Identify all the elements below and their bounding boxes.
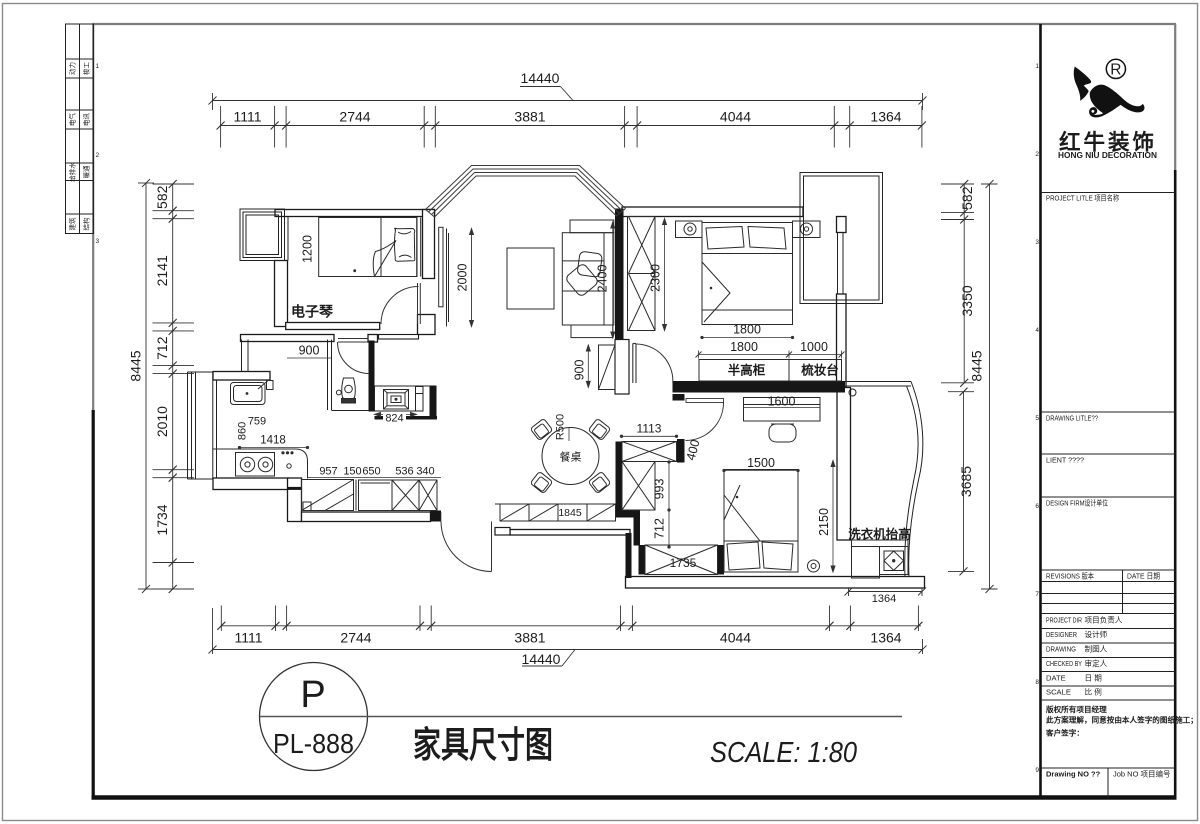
svg-text:R500: R500 (555, 414, 567, 440)
svg-text:1113: 1113 (637, 422, 662, 436)
svg-text:900: 900 (573, 360, 587, 381)
svg-text:993: 993 (653, 479, 667, 500)
svg-text:电讯: 电讯 (82, 113, 91, 127)
svg-text:客户签字：: 客户签字： (1046, 728, 1084, 738)
svg-text:DRAWING: DRAWING (1046, 645, 1076, 654)
svg-text:1600: 1600 (768, 395, 796, 409)
svg-text:DESIGNER: DESIGNER (1046, 630, 1077, 639)
svg-text:957: 957 (319, 466, 337, 478)
svg-text:审定人: 审定人 (1085, 658, 1108, 668)
svg-text:LIENT ????: LIENT ???? (1046, 456, 1084, 465)
svg-text:建筑: 建筑 (68, 217, 77, 231)
svg-text:1364: 1364 (870, 630, 901, 646)
svg-text:582: 582 (959, 186, 975, 210)
svg-text:1418: 1418 (260, 435, 286, 447)
svg-text:4044: 4044 (720, 109, 751, 125)
svg-text:8445: 8445 (969, 350, 985, 381)
svg-text:电子琴: 电子琴 (291, 304, 334, 320)
svg-text:2: 2 (1035, 151, 1039, 158)
svg-text:2300: 2300 (649, 264, 663, 292)
svg-text:半高柜: 半高柜 (728, 363, 766, 378)
svg-text:SCALE: SCALE (1046, 688, 1071, 697)
svg-text:Job NO 项目编号: Job NO 项目编号 (1113, 769, 1171, 779)
svg-text:7: 7 (1035, 591, 1039, 598)
svg-text:PROJECT DIR: PROJECT DIR (1046, 616, 1082, 625)
svg-text:824: 824 (385, 413, 403, 425)
svg-text:1364: 1364 (872, 593, 896, 605)
svg-text:暖通: 暖通 (82, 165, 91, 179)
svg-text:DESIGN FIRM设计单位: DESIGN FIRM设计单位 (1046, 498, 1108, 508)
svg-text:项目负责人: 项目负责人 (1085, 615, 1123, 625)
svg-text:1364: 1364 (870, 109, 901, 125)
svg-text:2400: 2400 (596, 265, 610, 293)
svg-text:3881: 3881 (514, 630, 545, 646)
svg-text:6: 6 (1035, 503, 1039, 510)
svg-text:14440: 14440 (521, 70, 560, 86)
svg-text:340: 340 (416, 466, 434, 478)
svg-text:3881: 3881 (514, 109, 545, 125)
svg-text:5: 5 (1035, 415, 1039, 422)
svg-text:536: 536 (395, 466, 413, 478)
svg-text:家具尺寸图: 家具尺寸图 (413, 724, 553, 765)
svg-text:1735: 1735 (670, 556, 697, 570)
svg-text:1800: 1800 (730, 340, 758, 354)
svg-text:REVISIONS 版本: REVISIONS 版本 (1046, 571, 1094, 581)
svg-text:餐桌: 餐桌 (560, 450, 582, 464)
svg-text:2010: 2010 (154, 406, 170, 437)
svg-text:4: 4 (1035, 327, 1039, 334)
svg-text:SCALE: 1:80: SCALE: 1:80 (710, 737, 857, 769)
svg-text:HONG NIU DECORATION: HONG NIU DECORATION (1058, 151, 1157, 160)
svg-text:版权所有项目经理: 版权所有项目经理 (1045, 704, 1107, 714)
svg-text:1: 1 (96, 63, 100, 70)
svg-text:2150: 2150 (817, 508, 831, 536)
svg-text:8445: 8445 (128, 350, 144, 381)
svg-text:PL-888: PL-888 (273, 728, 354, 759)
svg-text:2141: 2141 (154, 255, 170, 286)
svg-text:结构: 结构 (82, 217, 91, 231)
svg-text:电气: 电气 (68, 113, 77, 127)
svg-text:设计师: 设计师 (1085, 629, 1108, 639)
svg-text:3: 3 (1035, 239, 1039, 246)
svg-text:1500: 1500 (747, 456, 775, 470)
svg-text:比 例: 比 例 (1085, 687, 1103, 697)
svg-text:650: 650 (362, 466, 380, 478)
svg-text:1200: 1200 (301, 235, 315, 263)
svg-text:动力: 动力 (68, 62, 77, 75)
svg-text:712: 712 (653, 518, 667, 539)
svg-text:DATE 日期: DATE 日期 (1127, 572, 1160, 581)
svg-text:梳妆台: 梳妆台 (800, 363, 839, 378)
svg-text:2744: 2744 (339, 109, 370, 125)
svg-text:CHECKED BY: CHECKED BY (1046, 659, 1082, 668)
svg-text:洗衣机抬高: 洗衣机抬高 (848, 527, 911, 542)
svg-text:4044: 4044 (720, 630, 751, 646)
svg-text:1111: 1111 (234, 630, 262, 646)
svg-text:1111: 1111 (233, 109, 261, 125)
svg-text:P: P (300, 674, 325, 716)
svg-text:8: 8 (1035, 679, 1039, 686)
svg-text:DATE: DATE (1046, 674, 1066, 683)
svg-text:14440: 14440 (522, 651, 561, 667)
svg-text:给排水: 给排水 (68, 162, 77, 182)
svg-text:梭工: 梭工 (82, 62, 91, 76)
svg-text:PROJECT LITLE 项目名称: PROJECT LITLE 项目名称 (1046, 193, 1119, 203)
svg-text:制图人: 制图人 (1085, 644, 1108, 654)
svg-text:3685: 3685 (958, 466, 974, 497)
svg-text:DRAWING LITLE??: DRAWING LITLE?? (1046, 414, 1098, 423)
svg-text:3350: 3350 (959, 285, 975, 316)
svg-text:R: R (1110, 62, 1121, 79)
svg-text:1800: 1800 (733, 323, 761, 337)
svg-text:860: 860 (237, 422, 249, 440)
svg-text:2: 2 (96, 152, 100, 159)
svg-text:900: 900 (299, 344, 320, 358)
svg-text:712: 712 (154, 336, 170, 360)
svg-text:1000: 1000 (800, 340, 828, 354)
svg-text:1734: 1734 (154, 504, 170, 535)
svg-text:582: 582 (154, 185, 170, 209)
svg-text:3: 3 (96, 238, 100, 245)
svg-text:1: 1 (1035, 63, 1039, 70)
svg-text:9: 9 (1035, 767, 1039, 774)
svg-text:日 期: 日 期 (1085, 674, 1103, 683)
svg-text:759: 759 (248, 416, 266, 428)
svg-text:1845: 1845 (558, 507, 582, 519)
svg-text:2000: 2000 (456, 264, 470, 292)
svg-text:150: 150 (343, 466, 361, 478)
svg-text:2744: 2744 (340, 630, 371, 646)
svg-text:此方案理解，同意按由本人签字的图纸施工；: 此方案理解，同意按由本人签字的图纸施工； (1046, 715, 1198, 726)
svg-text:Drawing NO ??: Drawing NO ?? (1046, 770, 1101, 779)
